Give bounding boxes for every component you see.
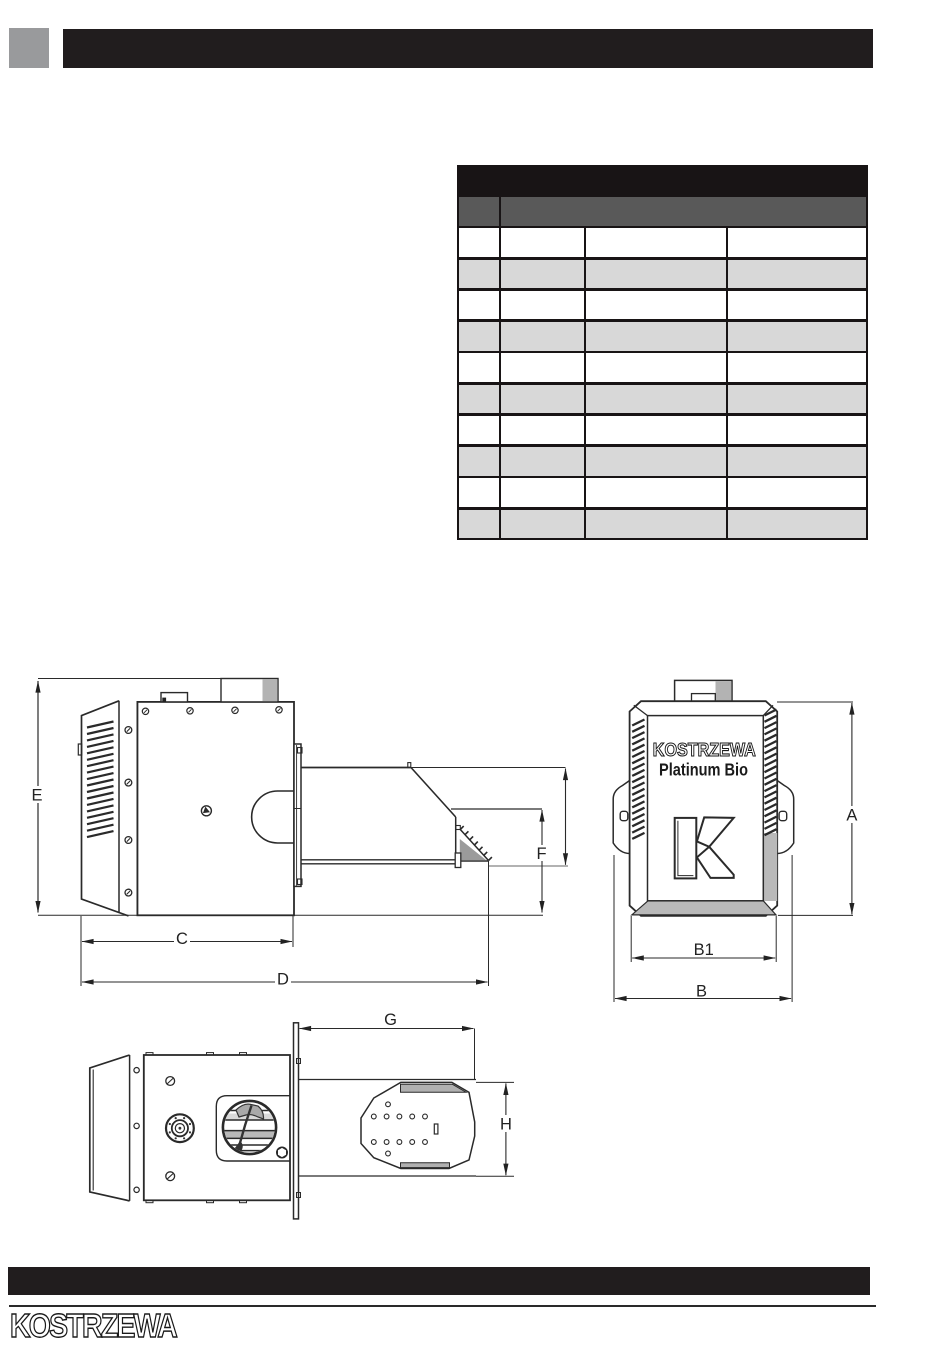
svg-text:KOSTRZEWA: KOSTRZEWA xyxy=(10,1307,177,1344)
svg-text:C: C xyxy=(176,930,188,948)
svg-text:B1: B1 xyxy=(694,941,714,959)
svg-text:E: E xyxy=(31,787,42,805)
svg-text:A: A xyxy=(846,807,857,825)
svg-text:D: D xyxy=(277,971,289,989)
svg-text:Platinum Bio: Platinum Bio xyxy=(659,760,748,780)
svg-text:B: B xyxy=(696,983,707,1001)
svg-text:G: G xyxy=(384,1011,397,1029)
svg-text:KOSTRZEWA: KOSTRZEWA xyxy=(653,739,756,760)
svg-text:H: H xyxy=(500,1116,512,1134)
svg-text:F: F xyxy=(536,845,546,863)
